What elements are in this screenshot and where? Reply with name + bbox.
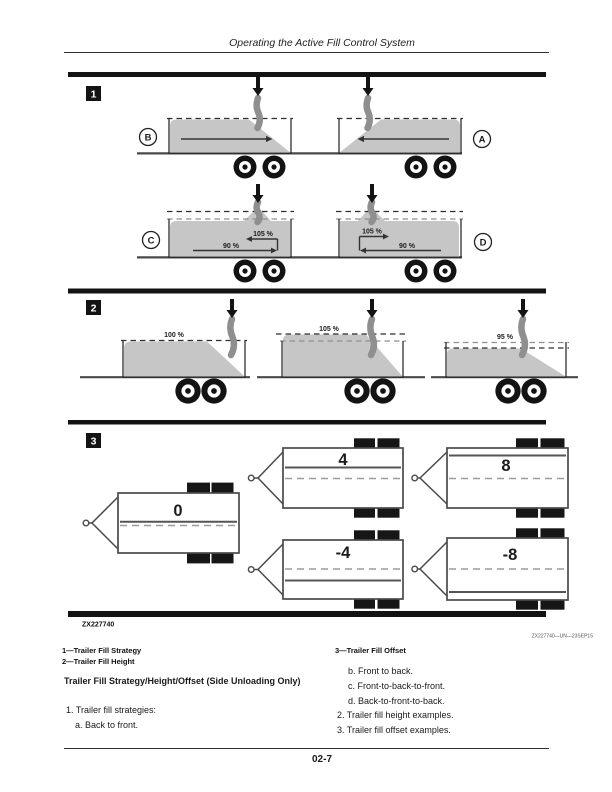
wheel-icon	[516, 438, 538, 448]
page-number: 02-7	[272, 754, 372, 766]
figure-top-bar	[68, 72, 546, 77]
hitch-icon	[420, 452, 447, 504]
crop-fill	[124, 342, 245, 377]
wheel-icon	[521, 378, 546, 403]
crop-spout-icon	[370, 319, 374, 355]
wheel-icon	[541, 508, 565, 518]
trailer-offset-8: 8	[412, 438, 568, 517]
body-item-1c: c. Front-to-back-to-front.	[348, 681, 445, 691]
trailer-offset-0: 0	[83, 483, 239, 564]
wheel-icon	[212, 553, 234, 563]
hitch-icon	[258, 544, 283, 595]
hitch-icon	[92, 497, 118, 549]
height-percent-label: 105 %	[319, 326, 340, 333]
trailer-offset-4: 4	[248, 438, 403, 517]
offset-value-label: 8	[501, 457, 510, 475]
pass1-percent-label: 105 %	[362, 229, 383, 236]
down-arrow-icon	[518, 299, 529, 318]
wheel-icon	[541, 438, 565, 448]
wheel-icon	[378, 599, 400, 609]
panel-1-badge-number: 1	[91, 89, 97, 101]
offset-value-label: -4	[336, 544, 351, 562]
wheel-icon	[434, 260, 457, 283]
legend-item-2: 2—Trailer Fill Height	[62, 658, 135, 667]
down-arrow-icon	[227, 299, 238, 318]
wheel-icon	[541, 528, 565, 538]
figure-credit-label: ZX227740—UN—23SEP15	[532, 634, 594, 640]
offset-value-label: 0	[173, 502, 182, 520]
crop-spout-icon	[257, 202, 260, 222]
footer-rule	[64, 748, 549, 749]
crop-spout-icon	[367, 98, 370, 128]
section-heading: Trailer Fill Strategy/Height/Offset (Sid…	[64, 676, 328, 688]
down-arrow-icon	[367, 184, 378, 203]
wheel-icon	[212, 483, 234, 493]
pass2-percent-label: 90 %	[399, 243, 416, 250]
pass1-percent-label: 90 %	[223, 243, 240, 250]
trailer-label-c: C	[148, 235, 155, 246]
trailer-offset-minus-8: -8	[412, 528, 568, 609]
trailer-d-two-pass: 105 % 90 % D	[336, 184, 492, 283]
trailer-label-d: D	[480, 237, 487, 248]
down-arrow-icon	[253, 77, 264, 96]
figure-bottom-bar	[68, 611, 546, 617]
manual-page: Operating the Active Fill Control System…	[0, 0, 612, 792]
crop-fill	[447, 349, 566, 377]
crop-fill	[340, 120, 461, 153]
hitch-ring-icon	[248, 475, 254, 481]
hitch-ring-icon	[83, 520, 89, 526]
wheel-icon	[378, 530, 400, 540]
trailer-offset-minus-4: -4	[248, 530, 403, 608]
wheel-icon	[434, 156, 457, 179]
panel-1-fill-strategy: 1 B	[86, 77, 492, 283]
hitch-ring-icon	[248, 567, 254, 573]
hitch-icon	[258, 452, 283, 504]
crop-spout-icon	[257, 98, 260, 128]
offset-value-label: 4	[338, 451, 348, 469]
wheel-icon	[405, 156, 428, 179]
height-percent-label: 95 %	[497, 334, 514, 341]
body-item-1b: b. Front to back.	[348, 666, 413, 676]
body-item-1a: a. Back to front.	[75, 720, 138, 730]
trailer-b-back-to-front: B	[140, 77, 294, 179]
crop-spout-icon	[230, 319, 234, 355]
trailer-height-100: 100 %	[121, 299, 247, 404]
figure-id-label: ZX227740	[82, 622, 114, 629]
hitch-ring-icon	[412, 566, 418, 572]
trailer-c-two-pass: 105 % 90 % C	[143, 184, 295, 283]
wheel-icon	[175, 378, 200, 403]
wheel-icon	[234, 260, 257, 283]
wheel-icon	[234, 156, 257, 179]
body-item-2: 2. Trailer fill height examples.	[337, 710, 454, 720]
trailer-height-105: 105 %	[276, 299, 409, 404]
wheel-icon	[541, 600, 565, 610]
height-percent-label: 100 %	[164, 332, 185, 339]
wheel-icon	[516, 528, 538, 538]
crop-spout-icon	[371, 202, 374, 222]
down-arrow-icon	[367, 299, 378, 318]
hitch-ring-icon	[412, 475, 418, 481]
hitch-icon	[420, 542, 447, 596]
down-arrow-icon	[253, 184, 264, 203]
figure-divider-bar-2	[68, 420, 546, 425]
body-item-1d: d. Back-to-front-to-back.	[348, 696, 445, 706]
crop-spout-icon	[521, 319, 525, 355]
figure-divider-bar-1	[68, 289, 546, 294]
body-item-3: 3. Trailer fill offset examples.	[337, 725, 451, 735]
down-arrow-icon	[363, 77, 374, 96]
wheel-icon	[354, 508, 375, 518]
wheel-icon	[378, 508, 400, 518]
wheel-icon	[516, 508, 538, 518]
wheel-icon	[516, 600, 538, 610]
trailer-a-front-to-back: A	[337, 77, 491, 179]
wheel-icon	[201, 378, 226, 403]
wheel-icon	[263, 156, 286, 179]
wheel-icon	[405, 260, 428, 283]
wheel-icon	[344, 378, 369, 403]
body-item-1: 1. Trailer fill strategies:	[66, 705, 156, 715]
wheel-icon	[187, 483, 210, 493]
wheel-icon	[354, 438, 375, 448]
panel-3-badge-number: 3	[91, 436, 97, 448]
wheel-icon	[187, 553, 210, 563]
legend-item-3: 3—Trailer Fill Offset	[335, 647, 406, 656]
offset-value-label: -8	[503, 546, 518, 564]
wheel-icon	[370, 378, 395, 403]
figure-zx227740: 1 B	[0, 0, 612, 792]
wheel-icon	[263, 260, 286, 283]
wheel-icon	[378, 438, 400, 448]
panel-2-fill-height: 2 100 % 105 %	[80, 299, 578, 404]
panel-2-badge-number: 2	[91, 303, 97, 315]
trailer-label-a: A	[479, 134, 486, 145]
legend-item-1: 1—Trailer Fill Strategy	[62, 647, 141, 656]
trailer-height-95: 95 %	[444, 299, 569, 404]
wheel-icon	[354, 530, 375, 540]
panel-3-fill-offset: 3 0	[83, 433, 568, 610]
trailer-label-b: B	[145, 132, 152, 143]
pass2-percent-label: 105 %	[253, 231, 274, 238]
wheel-icon	[495, 378, 520, 403]
crop-fill	[170, 120, 291, 153]
wheel-icon	[354, 599, 375, 609]
